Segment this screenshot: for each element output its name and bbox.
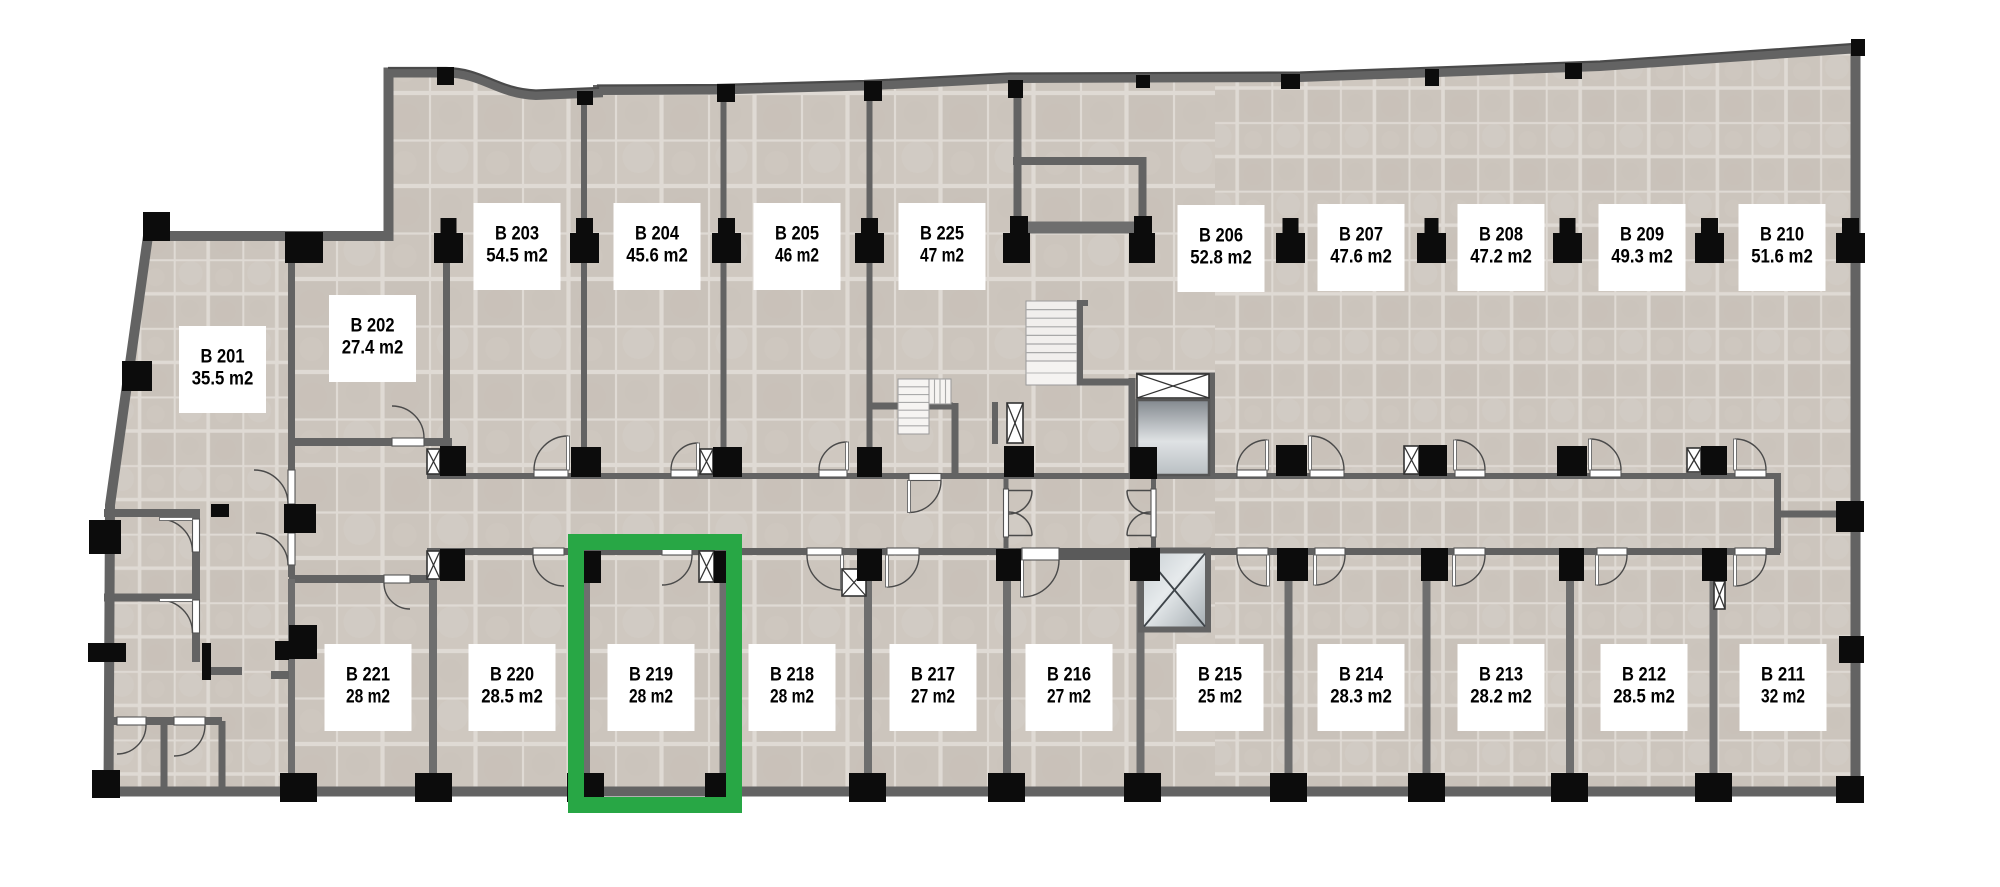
svg-text:B 202: B 202 [351, 315, 395, 337]
svg-text:B 203: B 203 [495, 223, 539, 245]
svg-text:B 221: B 221 [346, 664, 390, 686]
svg-text:49.3 m2: 49.3 m2 [1611, 246, 1673, 268]
svg-text:B 225: B 225 [920, 223, 964, 245]
svg-text:54.5 m2: 54.5 m2 [486, 245, 548, 267]
svg-text:52.8 m2: 52.8 m2 [1190, 247, 1252, 269]
svg-text:B 215: B 215 [1198, 664, 1242, 686]
svg-text:B 204: B 204 [635, 223, 679, 245]
svg-text:B 206: B 206 [1199, 225, 1243, 247]
svg-text:51.6 m2: 51.6 m2 [1751, 246, 1813, 268]
svg-text:B 211: B 211 [1761, 664, 1805, 686]
svg-text:46 m2: 46 m2 [775, 245, 819, 267]
svg-text:B 205: B 205 [775, 223, 819, 245]
svg-text:28.5 m2: 28.5 m2 [481, 686, 543, 708]
svg-text:45.6 m2: 45.6 m2 [626, 245, 688, 267]
svg-text:B 213: B 213 [1479, 664, 1523, 686]
svg-text:47 m2: 47 m2 [920, 245, 964, 267]
svg-text:25 m2: 25 m2 [1198, 686, 1242, 708]
svg-text:B 219: B 219 [629, 664, 673, 686]
svg-text:B 217: B 217 [911, 664, 955, 686]
svg-text:B 220: B 220 [490, 664, 534, 686]
svg-text:32 m2: 32 m2 [1761, 686, 1805, 708]
svg-text:B 216: B 216 [1047, 664, 1091, 686]
svg-text:B 218: B 218 [770, 664, 814, 686]
svg-text:B 208: B 208 [1479, 224, 1523, 246]
svg-text:47.2 m2: 47.2 m2 [1470, 246, 1532, 268]
svg-text:B 212: B 212 [1622, 664, 1666, 686]
svg-text:27.4 m2: 27.4 m2 [342, 337, 404, 359]
svg-text:35.5 m2: 35.5 m2 [192, 368, 254, 390]
svg-text:27 m2: 27 m2 [1047, 686, 1091, 708]
svg-text:B 201: B 201 [201, 346, 245, 368]
svg-text:28 m2: 28 m2 [770, 686, 814, 708]
svg-text:28.2 m2: 28.2 m2 [1470, 686, 1532, 708]
svg-text:28 m2: 28 m2 [629, 686, 673, 708]
svg-text:47.6 m2: 47.6 m2 [1330, 246, 1392, 268]
svg-text:28.3 m2: 28.3 m2 [1330, 686, 1392, 708]
svg-text:B 214: B 214 [1339, 664, 1383, 686]
svg-text:28 m2: 28 m2 [346, 686, 390, 708]
svg-text:B 207: B 207 [1339, 224, 1383, 246]
svg-text:27 m2: 27 m2 [911, 686, 955, 708]
svg-text:B 210: B 210 [1760, 224, 1804, 246]
svg-text:28.5 m2: 28.5 m2 [1613, 686, 1675, 708]
svg-text:B 209: B 209 [1620, 224, 1664, 246]
